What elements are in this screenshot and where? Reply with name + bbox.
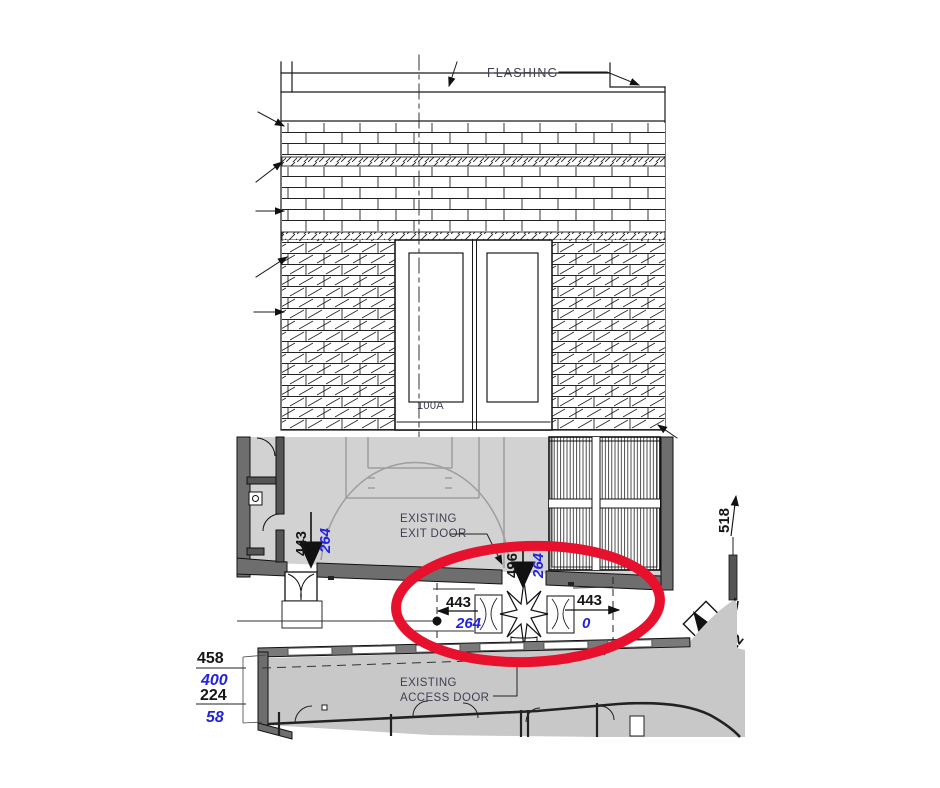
dim-west-1: 458 <box>197 650 224 667</box>
window <box>480 643 524 651</box>
new-opening-star-symbol <box>500 581 548 647</box>
access-door-label-line1: EXISTING <box>400 677 457 689</box>
architectural-drawing-sheet: 100A FLASHING <box>0 0 940 788</box>
door-tag-100A: 100A <box>417 400 444 412</box>
dim-right-width: 443 <box>577 592 602 609</box>
gym-exit-vestibule <box>282 572 322 628</box>
dim-west-4: 58 <box>206 709 224 726</box>
window <box>544 641 588 649</box>
dim-gym-door-width: 443 <box>293 531 310 556</box>
glazed-brick-left <box>282 240 395 430</box>
access-door-label-line2: ACCESS DOOR <box>400 692 489 704</box>
leader-arrow-2 <box>256 162 282 182</box>
dim-center-width: 496 <box>504 553 521 578</box>
glazed-brick-right <box>552 240 665 430</box>
window <box>352 646 396 654</box>
soldier-band-upper <box>282 157 665 166</box>
datum-bullet <box>433 617 442 626</box>
dim-east-wall: 518 <box>716 508 733 533</box>
connector-doors <box>475 581 574 649</box>
jamb-box-right <box>547 596 574 633</box>
floor-plan-view: EXISTING EXIT DOOR 443 264 496 264 443 2… <box>196 437 747 739</box>
dim-center-offset: 264 <box>530 552 547 579</box>
west-dimension-stack: 458 400 224 58 <box>196 650 266 726</box>
fixture-box <box>249 492 262 505</box>
flashing-leader-right <box>559 72 639 85</box>
column-marker <box>328 576 334 580</box>
brick-course-middle <box>282 167 665 231</box>
east-wall-segment <box>729 555 737 600</box>
column-marker <box>568 582 574 586</box>
drawing-canvas: 100A FLASHING <box>0 0 940 788</box>
elevation-view: 100A FLASHING <box>254 55 677 438</box>
door-leaf-right-panel <box>487 253 538 402</box>
door-leaf-left-panel <box>409 253 463 402</box>
gym-wall-east <box>661 437 673 590</box>
soldier-band-lower <box>282 232 665 240</box>
gym-wall-west <box>237 437 250 577</box>
dim-left-offset: 264 <box>455 615 482 632</box>
leader-arrow-1 <box>258 112 284 126</box>
leader-arrow-6 <box>658 425 677 438</box>
brick-course-upper <box>282 123 665 156</box>
flashing-label: FLASHING <box>487 66 558 80</box>
dim-left-width: 443 <box>446 594 471 611</box>
exit-door-label-line1: EXISTING <box>400 513 457 525</box>
dim-gym-door-offset: 264 <box>317 527 334 554</box>
dim-right-offset: 0 <box>582 615 591 632</box>
window <box>288 647 332 655</box>
building-west-wall <box>258 652 268 725</box>
dim-west-3: 224 <box>200 687 227 704</box>
flashing-leader-left <box>449 62 457 86</box>
